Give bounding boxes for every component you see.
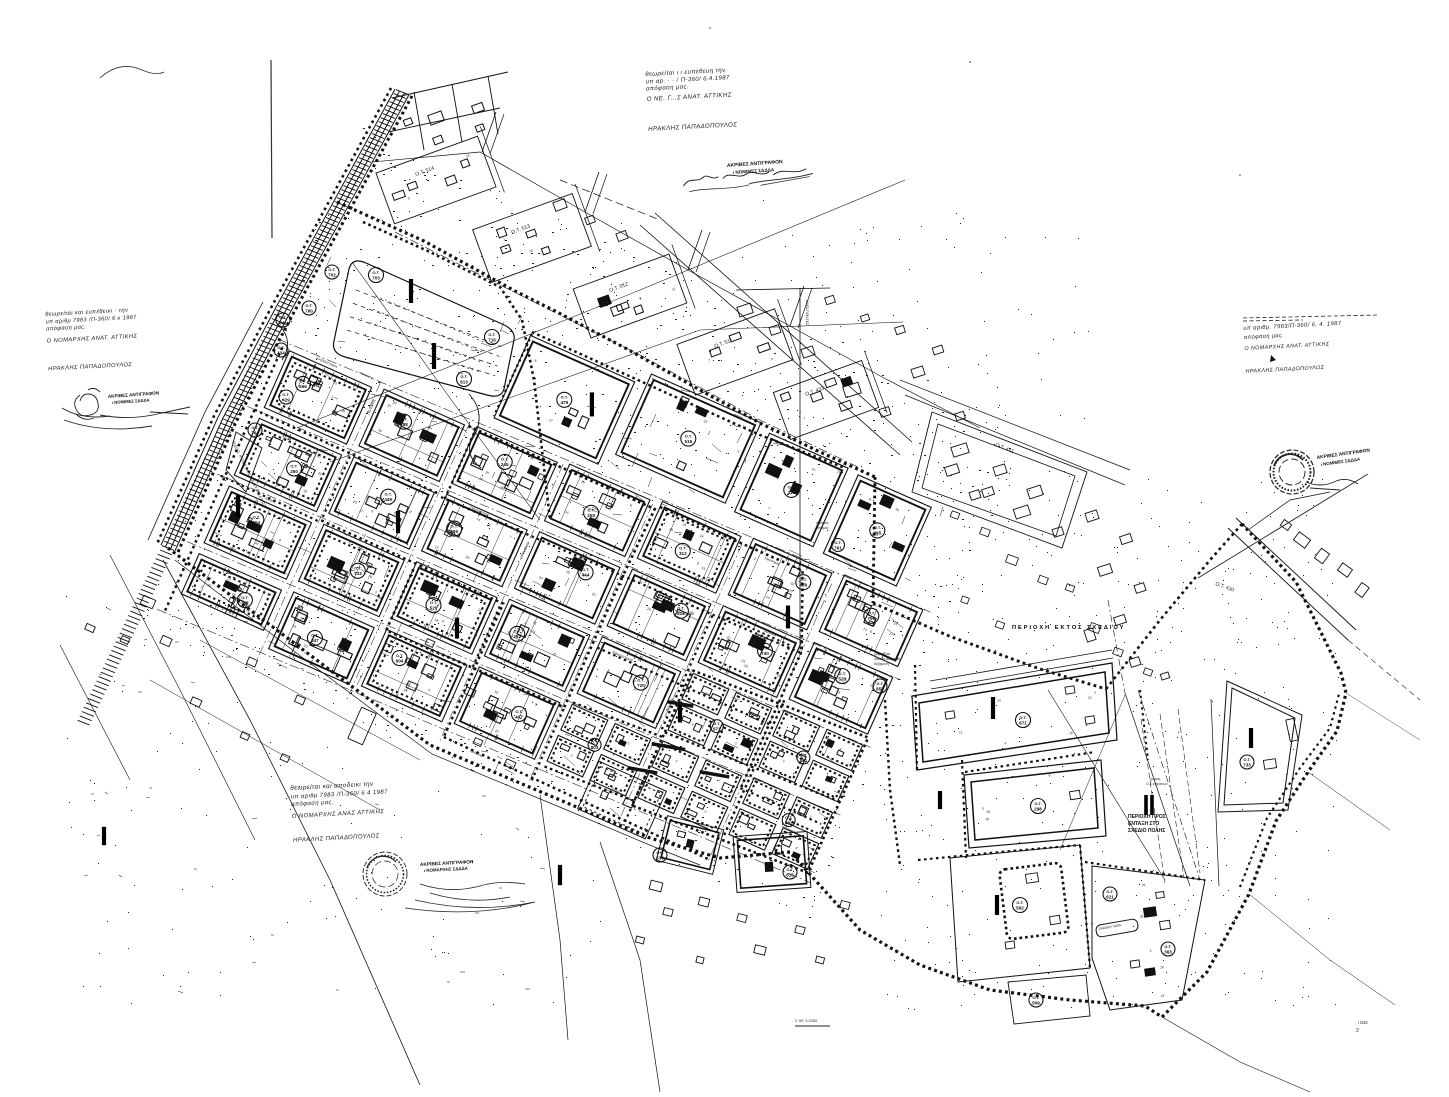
svg-text:621: 621 [1106,894,1114,899]
svg-text:531: 531 [800,758,808,763]
svg-text:χώρος για: χώρος για [874,652,890,656]
svg-text:O.T.: O.T. [451,523,458,528]
svg-text:298: 298 [1034,806,1042,811]
svg-text:O.T.: O.T. [311,633,318,638]
svg-text:O.T.: O.T. [385,492,392,497]
svg-text:871: 871 [713,727,721,732]
svg-text:444: 444 [582,573,590,578]
svg-text:813: 813 [460,379,468,384]
svg-text:ι 842: ι 842 [1358,1020,1368,1025]
svg-text:O.T.: O.T. [1032,995,1039,1000]
svg-text:733: 733 [1243,762,1251,767]
svg-text:O.T.: O.T. [396,653,403,658]
svg-text:479: 479 [560,400,568,405]
svg-text:O.T.: O.T. [501,457,508,462]
svg-text:O.T.: O.T. [713,721,720,726]
svg-text:312: 312 [679,551,687,556]
svg-text:O.T.: O.T. [679,546,686,551]
svg-text:815: 815 [786,872,794,877]
svg-text:483: 483 [785,820,793,825]
svg-text:O.T.: O.T. [488,332,495,337]
svg-text:803: 803 [591,745,599,750]
svg-text:2: 2 [1356,1028,1359,1034]
svg-text:υπαίθρ.θεατρική: υπαίθρ.θεατρική [874,657,900,661]
svg-text:O.T.: O.T. [874,525,881,530]
svg-text:293: 293 [513,634,521,639]
svg-text:O.T.: O.T. [786,867,793,872]
svg-text:O.T.: O.T. [515,709,522,714]
svg-text:O.T.: O.T. [279,315,286,320]
svg-text:O.T.: O.T. [788,485,795,490]
svg-text:362: 362 [241,600,249,605]
svg-text:841: 841 [279,320,287,325]
svg-text:O.T.: O.T. [290,463,297,468]
svg-text:O.T.: O.T. [305,303,312,308]
svg-text:520: 520 [430,606,438,611]
svg-text:855: 855 [876,686,884,691]
svg-text:509: 509 [1032,1000,1040,1005]
svg-text:O.T.: O.T. [677,606,684,611]
svg-text:258: 258 [587,513,595,518]
svg-text:O.T.: O.T. [514,629,521,634]
svg-text:666: 666 [299,384,307,389]
svg-text:παιδικός: παιδικός [816,521,829,525]
svg-text:245: 245 [501,462,509,467]
svg-text:O.T.: O.T. [241,595,248,600]
svg-text:720: 720 [637,683,645,688]
svg-text:702: 702 [328,272,336,277]
svg-text:O.T.: O.T. [637,677,644,682]
svg-text:O.T.: O.T. [282,392,289,397]
svg-text:865: 865 [873,531,881,536]
svg-text:703: 703 [372,275,380,280]
svg-text:347: 347 [311,638,319,643]
svg-text:ΠΕΡΙΟΧΗ ΠΡΟΣ: ΠΕΡΙΟΧΗ ΠΡΟΣ [1128,814,1166,820]
svg-text:449: 449 [384,497,392,502]
svg-text:Σ ΧΚ 1:2000: Σ ΧΚ 1:2000 [795,1018,818,1023]
svg-text:671: 671 [1019,720,1027,725]
svg-text:O.T.: O.T. [591,740,598,745]
svg-text:604: 604 [396,658,404,663]
svg-text:χώρος: χώρος [1150,777,1161,781]
svg-text:533: 533 [656,855,664,860]
svg-text:σταθμός: σταθμός [816,526,829,530]
svg-text:O.T.: O.T. [876,681,883,686]
svg-text:740: 740 [761,651,769,656]
svg-text:523: 523 [838,676,846,681]
svg-text:O.T.: O.T. [1016,900,1023,905]
svg-text:592: 592 [1016,905,1024,910]
svg-text:ΕΝΤΑΞΗ ΣΤΟ: ΕΝΤΑΞΗ ΣΤΟ [1128,821,1159,827]
svg-text:O.T.: O.T. [761,646,768,651]
svg-text:O.T.: O.T. [587,508,594,513]
svg-text:733: 733 [354,571,362,576]
svg-text:813: 813 [677,611,685,616]
svg-text:O.T.: O.T. [1106,889,1113,894]
svg-text:O.T.: O.T. [1164,944,1171,949]
svg-text:716: 716 [488,337,496,342]
svg-text:516: 516 [684,439,692,444]
svg-text:760: 760 [305,308,313,313]
svg-text:δεξαμενή: δεξαμενή [874,662,889,666]
svg-text:O.T.: O.T. [328,267,335,272]
svg-text:O.T.: O.T. [372,270,379,275]
svg-text:O.T.: O.T. [460,374,467,379]
svg-text:O.T.: O.T. [430,600,437,605]
svg-text:O.T.: O.T. [582,567,589,572]
svg-text:ΣΧΕΔΙΟ ΠΟΛΗΣ: ΣΧΕΔΙΟ ΠΟΛΗΣ [1128,828,1165,834]
svg-text:O.T.: O.T. [1034,801,1041,806]
svg-text:250: 250 [290,469,298,474]
svg-text:654: 654 [252,520,260,525]
svg-text:O.T.: O.T. [834,540,841,545]
svg-text:363: 363 [1164,949,1172,954]
svg-text:O.T.: O.T. [1243,757,1250,762]
svg-text:ΠΕΡΙΟΧΗ ΕΚΤΟΣ ΣΧΕΔΙΟΥ: ΠΕΡΙΟΧΗ ΕΚΤΟΣ ΣΧΕΔΙΟΥ [1012,625,1125,631]
svg-text:O.T.: O.T. [561,395,568,400]
svg-text:O.T.: O.T. [400,417,407,422]
svg-text:407: 407 [515,714,523,719]
svg-text:O.T.: O.T. [785,815,792,820]
svg-text:288: 288 [400,422,408,427]
svg-text:O.T.: O.T. [685,433,692,438]
svg-text:O.T.: O.T. [354,566,361,571]
svg-text:O.T.: O.T. [839,671,846,676]
svg-text:O.T.: O.T. [800,752,807,757]
svg-text:429: 429 [282,397,290,402]
svg-text:796: 796 [867,616,875,621]
svg-text:Ο.Σ.εγγ/σεων: Ο.Σ.εγγ/σεων [1146,782,1168,786]
svg-text:ΟΔΟΣ ΠΟΝ.ΓΚΣ: ΟΔΟΣ ΠΟΝ.ΓΚΣ [805,300,809,325]
svg-text:O.T.: O.T. [1019,715,1026,720]
svg-text:761: 761 [834,545,842,550]
svg-text:O.T.: O.T. [868,611,875,616]
